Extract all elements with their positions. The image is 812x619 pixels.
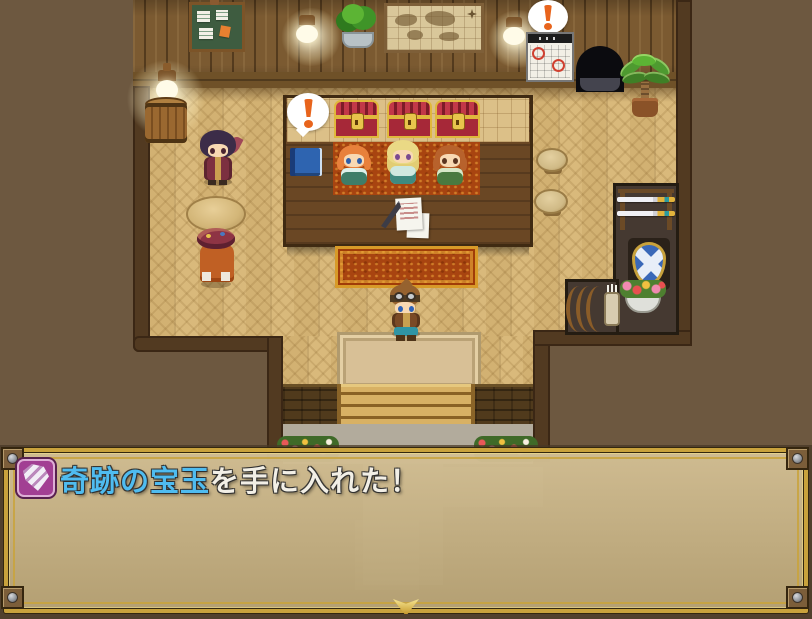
potted-bush <box>334 4 378 44</box>
bush-pot <box>342 32 374 48</box>
clerk-eye <box>406 154 411 160</box>
npc-clerk-orange-hair[interactable] <box>337 145 371 195</box>
sword <box>617 197 675 202</box>
coat-trim <box>215 157 221 180</box>
gem-facets <box>23 464 49 491</box>
board-note-orange <box>219 25 231 38</box>
hat-ornament <box>206 234 211 238</box>
message-suffix-text: を手に入れた！ <box>210 466 420 498</box>
frame-corner-plate <box>786 447 809 470</box>
sword-rack-post <box>620 190 625 230</box>
bush-leaves <box>342 4 364 24</box>
game-screen: 奇跡の宝玉を手に入れた！ <box>0 0 812 619</box>
palm-pot <box>632 98 658 117</box>
frame-corner-plate <box>1 586 24 609</box>
gem-icon <box>17 459 55 497</box>
wall-opening-floor <box>580 78 620 91</box>
map-grid <box>387 6 481 50</box>
lantern-cap <box>299 15 315 25</box>
treasure-chest[interactable] <box>387 100 432 140</box>
board-note <box>197 11 210 22</box>
chest-keyhole <box>355 120 358 125</box>
flower-basket <box>620 280 666 298</box>
arrow-quiver <box>604 292 620 326</box>
robe-trim <box>202 272 211 281</box>
clerk-eye <box>442 158 447 164</box>
npc-hooded-merchant-back[interactable] <box>196 226 236 288</box>
npc-clerk-blonde[interactable] <box>385 140 421 195</box>
sword-rack-post <box>667 190 672 230</box>
stool <box>534 189 568 214</box>
wall-border <box>533 330 692 346</box>
clerk-eye <box>346 158 351 164</box>
sword-rack-bar <box>618 189 674 193</box>
entrance-steps <box>337 384 475 428</box>
treasure-chest[interactable] <box>435 100 480 140</box>
clerk-outfit <box>390 166 416 184</box>
hero-boot <box>407 335 416 341</box>
rivet-icon <box>792 592 803 603</box>
palm-frond <box>632 54 656 66</box>
wall-calendar <box>526 32 574 82</box>
wall-border <box>133 336 283 352</box>
wall-border <box>676 0 692 346</box>
clerk-eye <box>357 158 362 164</box>
hat-ornament <box>220 232 225 236</box>
lantern-finial <box>163 63 171 71</box>
clerk-eye <box>395 154 400 160</box>
item-name-text: 奇跡の宝玉 <box>60 466 210 498</box>
message-text: 奇跡の宝玉を手に入れた！ <box>60 458 420 500</box>
npc-eye <box>210 148 215 154</box>
wall-lantern-right <box>503 27 525 45</box>
shield-display <box>632 242 666 285</box>
rivet-icon <box>7 592 18 603</box>
clerk-outfit <box>437 168 463 185</box>
bulletin-board <box>189 2 245 52</box>
rivet-icon <box>7 453 18 464</box>
wall-lantern-left <box>296 25 318 43</box>
chest-keyhole <box>456 120 459 125</box>
stool <box>536 148 568 172</box>
npc-eye <box>221 148 226 154</box>
npc-clerk-auburn-hair[interactable] <box>433 145 467 195</box>
frame-corner-plate <box>786 586 809 609</box>
hero-with-goggles[interactable] <box>386 280 428 342</box>
npc-foot <box>219 180 227 185</box>
exclamation-icon <box>544 23 552 30</box>
ledger-book <box>290 148 322 176</box>
clerk-eye <box>453 158 458 164</box>
calendar-header <box>528 34 572 43</box>
wall-map <box>384 3 484 53</box>
goggle-lens <box>394 292 404 301</box>
board-note <box>199 28 213 39</box>
hero-eye <box>398 306 403 312</box>
exclamation-icon <box>304 120 313 128</box>
npc-black-haired-adventurer[interactable] <box>196 128 242 188</box>
sword <box>617 211 675 216</box>
clerk-hair-tuft <box>364 157 371 170</box>
chest-keyhole <box>408 120 411 125</box>
note-text-scribble <box>399 203 418 220</box>
barrel <box>145 103 187 143</box>
jacket-trim <box>403 313 410 328</box>
goggle-lens <box>406 292 416 301</box>
merchant-hat <box>197 228 235 249</box>
treasure-chest[interactable] <box>334 100 379 140</box>
board-pin <box>210 0 219 5</box>
calendar-mark <box>532 47 545 60</box>
rivet-icon <box>792 453 803 464</box>
hero-boot <box>396 335 405 341</box>
clerk-outfit <box>341 168 367 185</box>
calendar-mark <box>552 59 565 72</box>
hero-eye <box>409 306 414 312</box>
robe-trim <box>221 272 230 281</box>
lantern-cap <box>506 17 522 27</box>
board-note <box>216 10 228 20</box>
npc-foot <box>208 180 216 185</box>
